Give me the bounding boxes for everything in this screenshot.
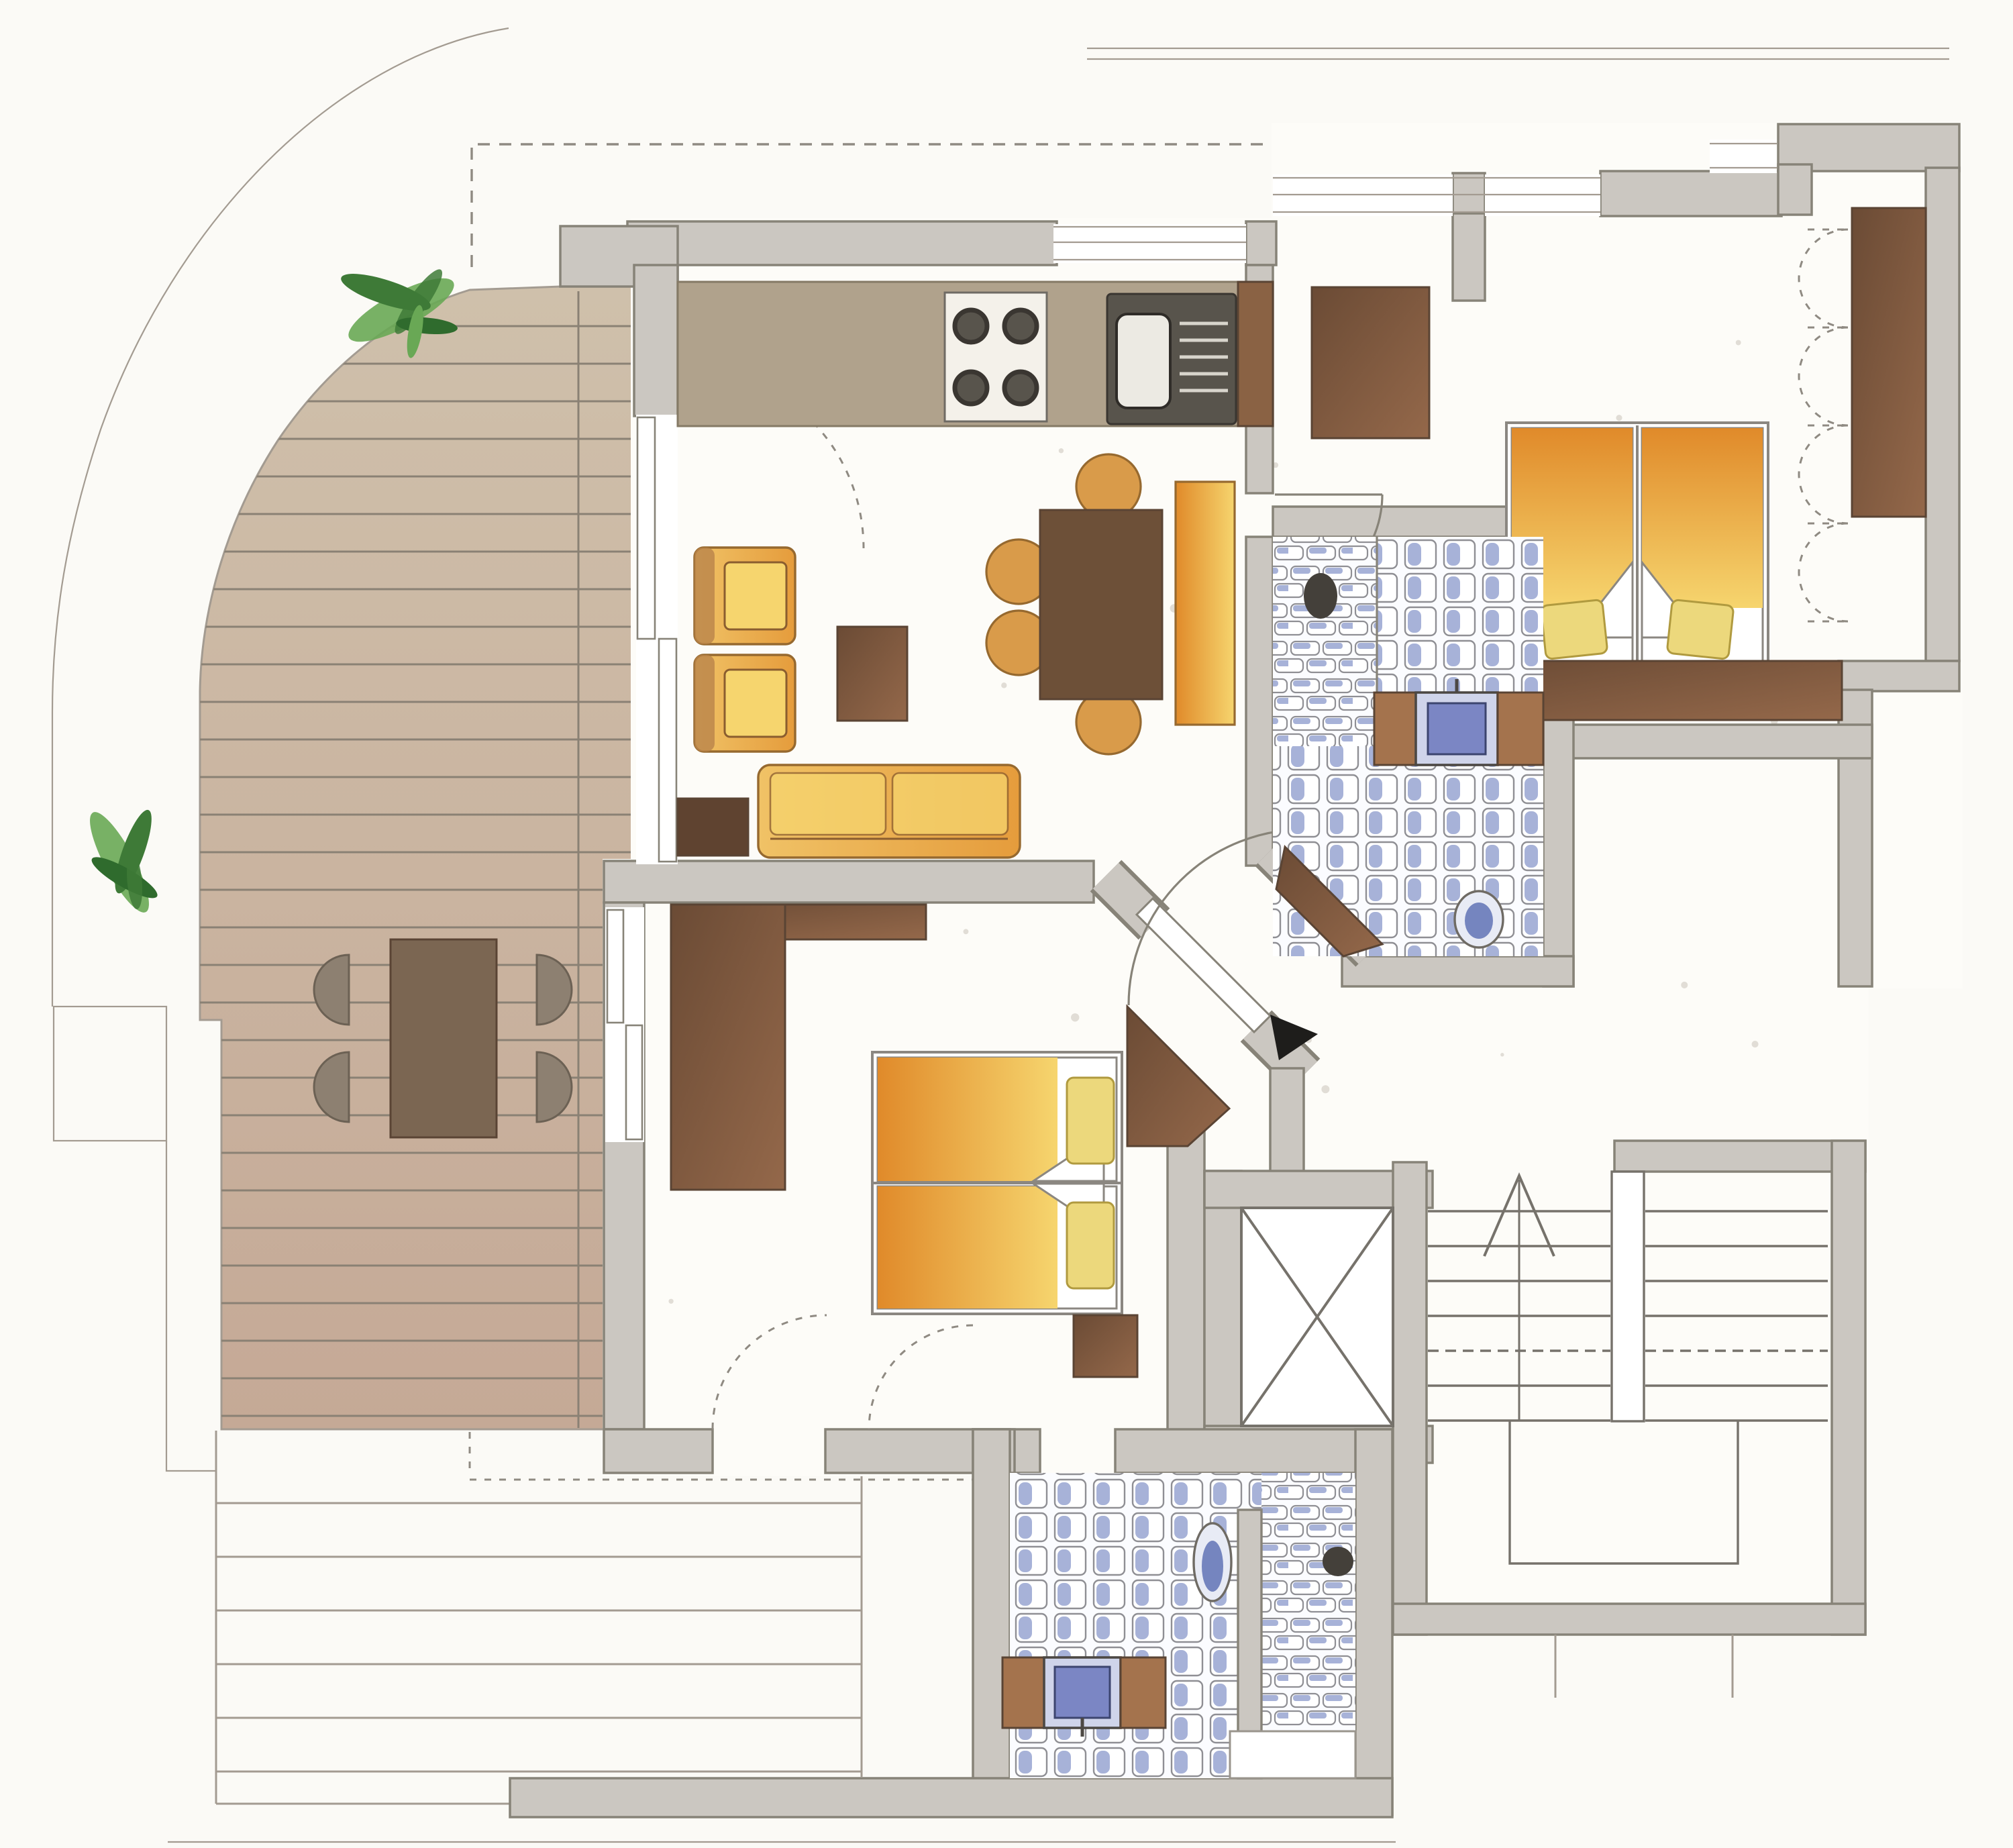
- floor-plan: [0, 0, 2013, 1848]
- vanity: [1374, 679, 1543, 765]
- corridor-window: [1273, 174, 1600, 216]
- wall-kitchen-west-pier: [634, 265, 678, 416]
- terrace-table: [391, 939, 497, 1137]
- wall-stair-west: [1393, 1162, 1427, 1635]
- armchair: [694, 548, 795, 644]
- deck-surface: [200, 287, 634, 1429]
- planter-box: [54, 1007, 166, 1141]
- pillow: [1067, 1078, 1114, 1164]
- wall-east-upper: [1926, 168, 1959, 661]
- burner: [1004, 310, 1037, 342]
- kitchen-window: [1053, 224, 1246, 263]
- wall-south-band: [510, 1778, 1392, 1817]
- vanity-counter: [1374, 692, 1416, 765]
- wall-hall-west: [1270, 1068, 1304, 1174]
- wall-spine-lower: [1246, 537, 1273, 866]
- wall-north-east: [1600, 171, 1782, 216]
- corridor-cabinet: [1312, 287, 1429, 438]
- sliding-panel: [637, 417, 655, 639]
- speckle: [1071, 1013, 1079, 1021]
- speckle: [1500, 1053, 1504, 1056]
- washbasin: [1055, 1667, 1110, 1718]
- vanity: [1002, 1657, 1166, 1737]
- wall-living-south: [604, 861, 1094, 903]
- cooktop: [945, 293, 1047, 421]
- speckle: [1751, 1041, 1758, 1047]
- duvet: [878, 1186, 1057, 1308]
- wall-bathroom2-east: [1355, 1429, 1392, 1815]
- speckle: [668, 1299, 673, 1304]
- kitchen: [678, 282, 1273, 426]
- wardrobe-side-leg: [671, 905, 785, 1190]
- wall-elevator-west: [1204, 1171, 1241, 1463]
- sink-basin: [1117, 314, 1170, 408]
- washbasin: [1428, 703, 1486, 754]
- vanity-counter: [1498, 692, 1543, 765]
- burner: [955, 310, 987, 342]
- dining-table: [1040, 510, 1162, 699]
- speckle: [1736, 340, 1741, 346]
- exterior-steps: [216, 1431, 862, 1804]
- coffee-table: [837, 627, 907, 721]
- pillow: [1541, 599, 1608, 659]
- closet-notch-window: [1710, 140, 1777, 173]
- tub-ledge: [1230, 1731, 1355, 1778]
- bathroom-1: [1273, 537, 1543, 956]
- living-terrace-glass-door: [636, 415, 678, 864]
- bedroom2-terrace-window: [605, 907, 644, 1142]
- wall-closet-west-return: [1778, 164, 1812, 215]
- kitchen-sink: [1107, 294, 1236, 424]
- stair-divider: [1612, 1172, 1644, 1421]
- side-table: [678, 799, 748, 856]
- window-panel: [626, 1025, 642, 1139]
- double-bed: [1506, 423, 1768, 668]
- wall-bathroom2-west: [973, 1429, 1010, 1815]
- sideboard: [1176, 482, 1235, 725]
- wall-stair-north: [1614, 1141, 1865, 1172]
- wall-bathroom2-north-b: [1115, 1429, 1392, 1473]
- wall-kitchen-north: [627, 221, 1057, 265]
- wall-pier-north: [1246, 221, 1276, 265]
- speckle: [1681, 982, 1688, 988]
- speckle: [1321, 1085, 1329, 1093]
- shrub-left: [80, 806, 162, 919]
- duvet: [1642, 428, 1763, 608]
- bathroom-2: [1002, 1473, 1355, 1778]
- wall-bedroom2-east: [1168, 1100, 1204, 1431]
- duvet: [878, 1058, 1057, 1181]
- burner: [955, 372, 987, 404]
- double-bed: [872, 1052, 1122, 1314]
- wall-bedroom2-south-a: [604, 1429, 713, 1473]
- property-line-left-jog: [166, 1141, 216, 1471]
- armchair: [694, 655, 795, 752]
- speckle: [1001, 682, 1007, 688]
- window-panel: [607, 910, 623, 1023]
- wall-stub-corridor: [1453, 213, 1485, 301]
- counter-end-cabinet: [1238, 282, 1273, 426]
- toilet: [1455, 891, 1503, 947]
- vanity-counter: [1121, 1657, 1166, 1728]
- speckle: [1616, 415, 1622, 421]
- bathroom1-shower-tiles: [1273, 537, 1377, 746]
- speckle: [1059, 448, 1064, 453]
- speckle: [964, 929, 969, 934]
- sofa: [758, 765, 1020, 858]
- wall-east-jog: [1839, 661, 1959, 691]
- elevator: [1241, 1208, 1393, 1426]
- built-in-wardrobe: [1852, 208, 1926, 517]
- shower-drain: [1304, 573, 1337, 619]
- steps-treads: [216, 1503, 862, 1772]
- sliding-panel: [659, 639, 676, 862]
- foot-chest: [1074, 1315, 1137, 1377]
- pillow: [1067, 1202, 1114, 1288]
- burner: [1004, 372, 1037, 404]
- wall-stair-south: [1393, 1604, 1865, 1635]
- wall-stair-east: [1832, 1141, 1865, 1635]
- wall-bathroom1-south: [1342, 956, 1573, 986]
- toilet: [1194, 1523, 1231, 1601]
- pillow: [1667, 599, 1734, 659]
- vanity-counter: [1002, 1657, 1044, 1728]
- shower-drain: [1323, 1547, 1353, 1576]
